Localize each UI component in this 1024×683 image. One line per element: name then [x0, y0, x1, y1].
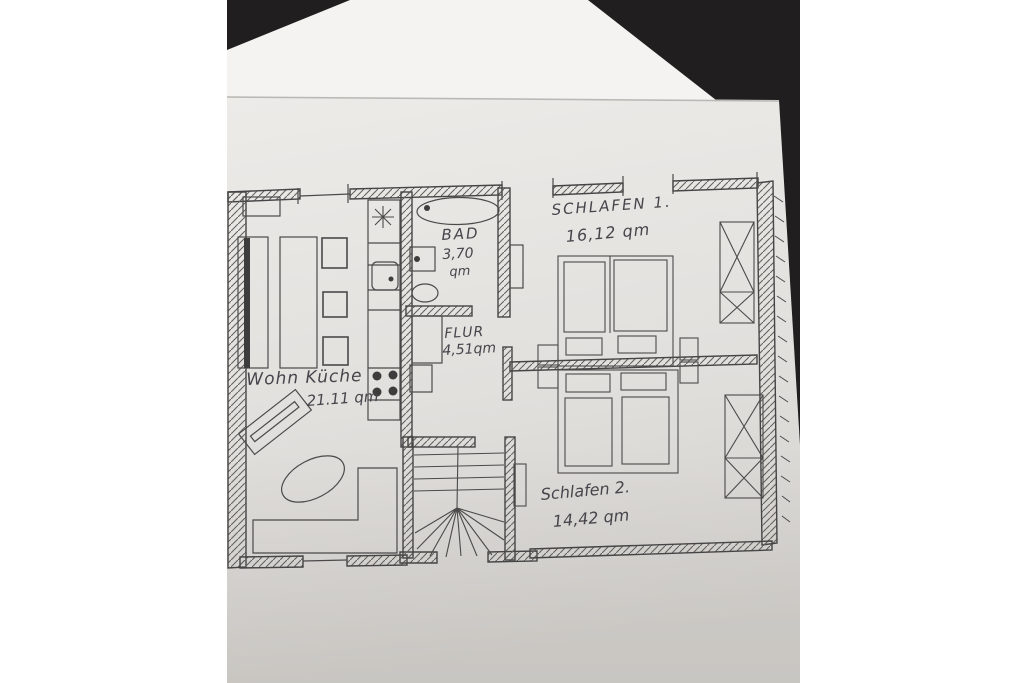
sink-drain	[389, 277, 394, 282]
wall-top-schlafen1-b	[673, 178, 758, 191]
wall-left	[228, 192, 246, 568]
wall-stair-left	[403, 437, 413, 558]
room-area-flur: 4,51qm	[442, 340, 496, 359]
wall-bad-flur	[406, 306, 472, 316]
wall-flur-schlafen1	[503, 347, 512, 400]
wall-bottom-living-a	[240, 556, 303, 568]
room-label-bad: BAD	[441, 224, 480, 244]
floor-plan-photo	[0, 0, 1024, 683]
washbasin-drain	[414, 256, 420, 262]
room-area-unit-bad: qm	[449, 264, 471, 280]
room-label-wohnkueche: Wohn Küche	[246, 366, 363, 390]
room-label-flur: FLUR	[444, 324, 485, 342]
screenshot-root: Wohn Küche 21.11 qm BAD 3,70 qm FLUR 4,5…	[0, 0, 1024, 683]
bathtub-drain	[424, 205, 430, 211]
bench-wall-edge	[244, 238, 250, 368]
wall-stair-top	[408, 437, 475, 447]
lamp-symbol	[372, 206, 394, 228]
wall-bottom-living-b	[347, 555, 407, 566]
room-area-bad: 3,70	[442, 245, 474, 263]
wall-bad-right	[498, 188, 510, 317]
wall-kitchen-bath	[401, 192, 412, 447]
